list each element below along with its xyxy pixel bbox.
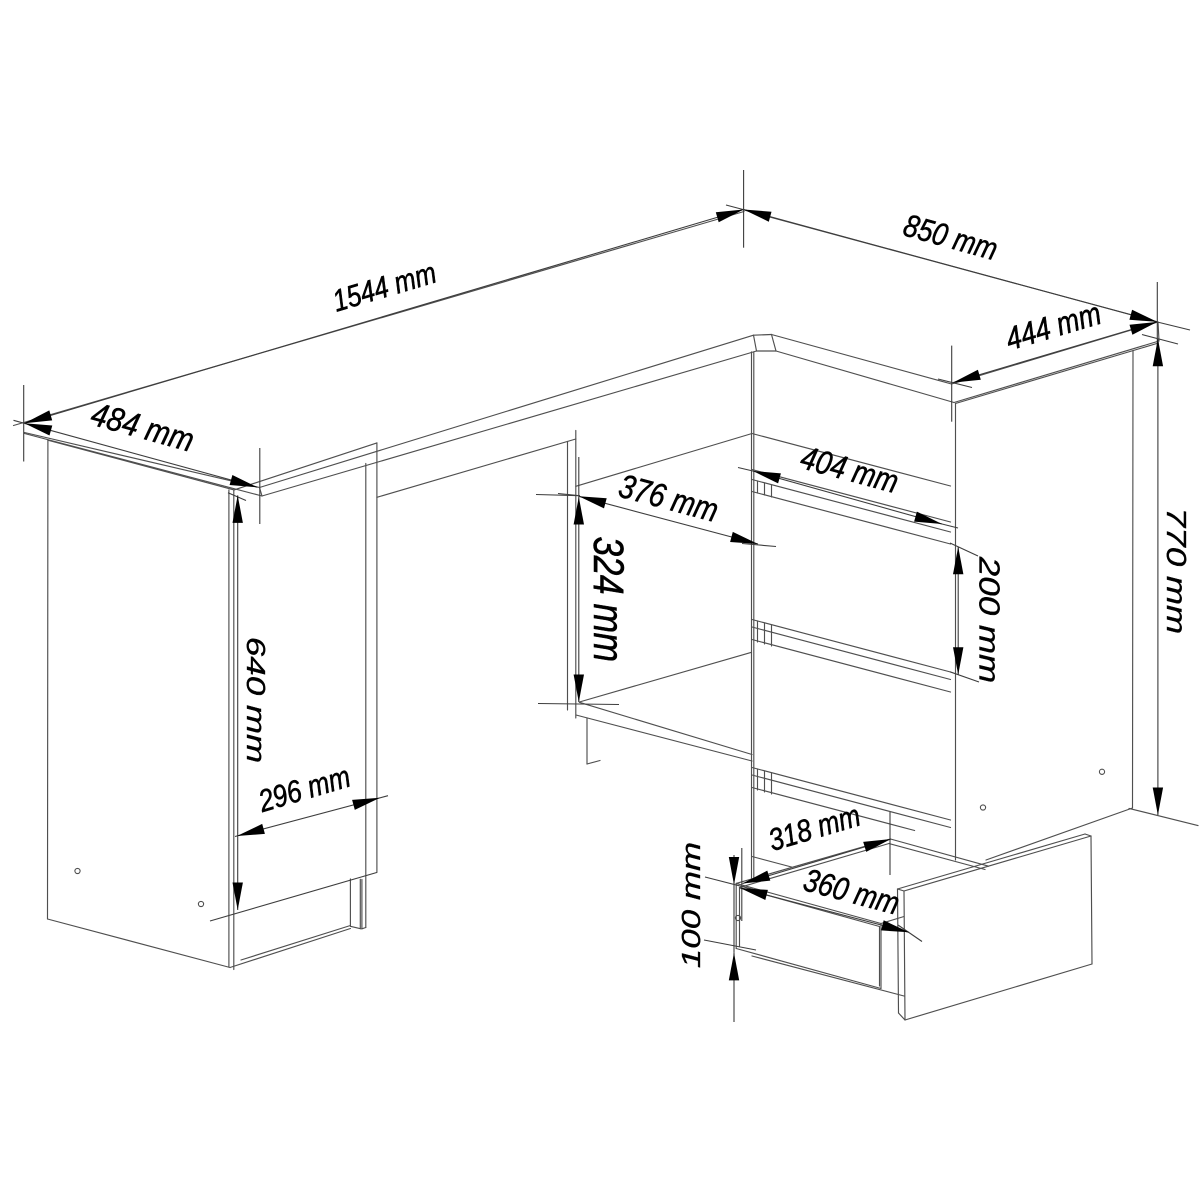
svg-text:324 mm: 324 mm — [584, 536, 631, 661]
svg-text:640 mm: 640 mm — [241, 637, 271, 763]
svg-text:100 mm: 100 mm — [676, 842, 706, 968]
svg-text:200 mm: 200 mm — [973, 556, 1005, 684]
svg-text:770 mm: 770 mm — [1161, 508, 1193, 634]
